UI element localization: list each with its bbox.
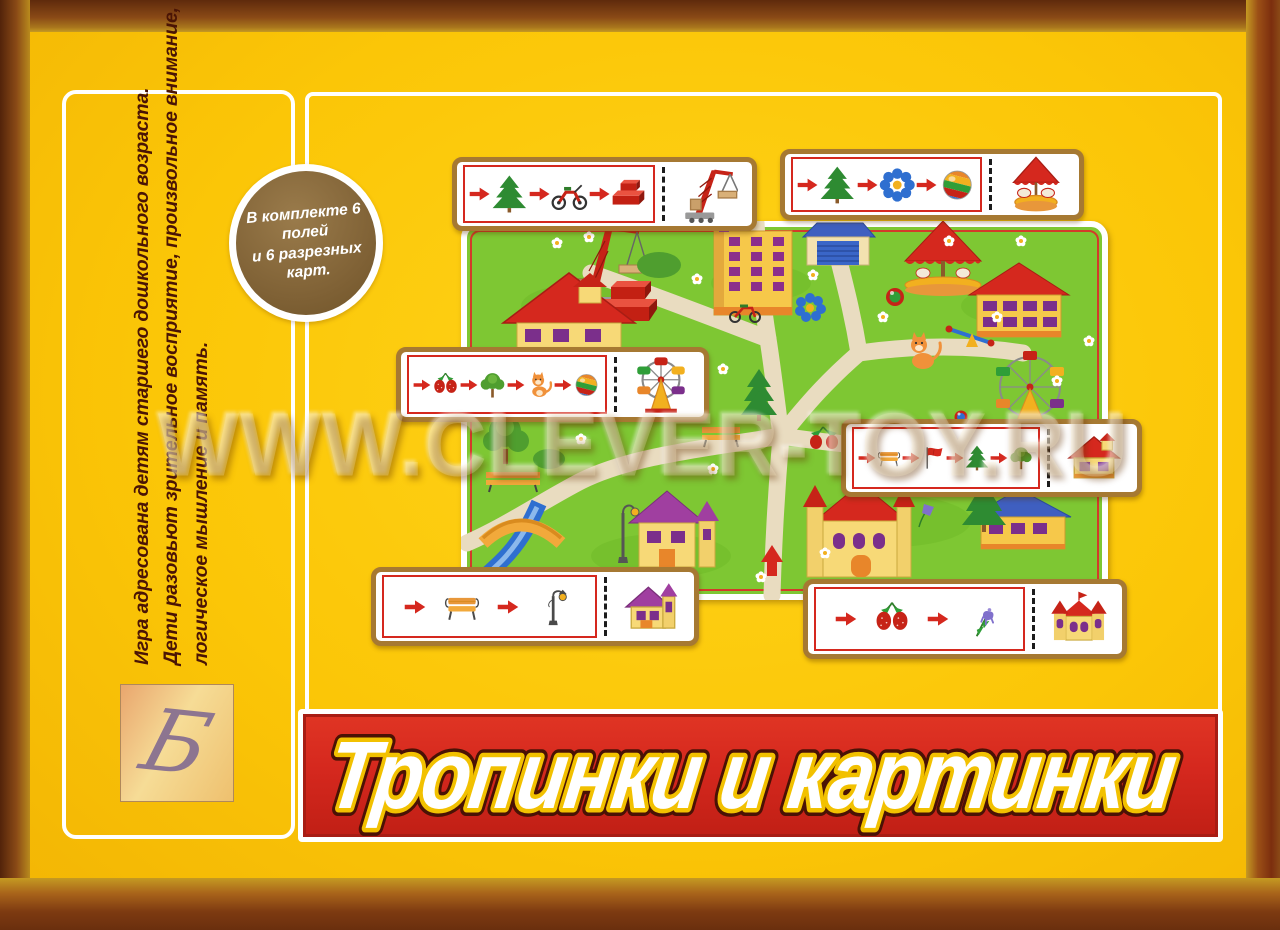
- arrow-icon: [916, 176, 937, 194]
- card-sequence: [791, 157, 982, 212]
- frame-left-edge: [0, 0, 30, 930]
- striped-ball-icon: [572, 364, 601, 406]
- sequence-card: [452, 157, 757, 231]
- sequence-card: [803, 579, 1127, 659]
- castle-house-icon: [1050, 590, 1108, 648]
- card-divider: [604, 577, 607, 636]
- game-box-cover: Игра адресована детям старшего дошкольно…: [0, 0, 1280, 930]
- arrow-icon: [497, 598, 519, 616]
- arrow-icon: [469, 185, 490, 203]
- audience-description: Игра адресована детям старшего дошкольно…: [128, 140, 233, 665]
- bench-icon: [876, 437, 902, 479]
- arrow-icon: [413, 376, 431, 394]
- fir-tree-icon: [490, 173, 529, 215]
- card-sequence: [407, 355, 607, 414]
- publisher-logo-glyph: Б: [134, 698, 221, 789]
- frame-right-edge: [1246, 0, 1280, 930]
- card-divider: [1032, 589, 1035, 649]
- crane-icon: [680, 165, 738, 223]
- card-divider: [1047, 429, 1050, 487]
- fir-tree-icon: [818, 164, 857, 206]
- carousel-icon: [1007, 156, 1065, 214]
- green-tree-icon: [478, 364, 507, 406]
- arrow-icon: [460, 376, 478, 394]
- arrow-icon: [858, 449, 876, 467]
- arrow-icon: [589, 185, 610, 203]
- badge-line-2: и 6 разрезных карт.: [251, 239, 362, 282]
- red-roof-house-icon: [1065, 429, 1123, 487]
- street-lamp-icon: [535, 586, 575, 628]
- card-target: [614, 578, 688, 636]
- card-target: [1042, 590, 1116, 648]
- arrow-icon: [946, 449, 964, 467]
- title-banner: Тропинки и картинки Тропинки и картинки …: [298, 709, 1223, 842]
- bush: [533, 449, 565, 469]
- arrow-icon: [835, 610, 857, 628]
- card-divider: [614, 357, 617, 412]
- red-flag-icon: [920, 437, 946, 479]
- kitten-icon: [525, 364, 554, 406]
- card-target: [624, 356, 698, 414]
- contents-badge-text: В комплекте 6 полей и 6 разрезных карт.: [233, 198, 379, 287]
- contents-badge: В комплекте 6 полей и 6 разрезных карт.: [229, 164, 383, 322]
- badge-line-1: В комплекте 6 полей: [246, 200, 362, 243]
- page-title: Тропинки и картинки: [321, 722, 1182, 828]
- striped-ball-icon: [938, 164, 977, 206]
- bush: [637, 252, 681, 278]
- green-tree-icon: [1008, 437, 1034, 479]
- ferris-wheel-icon: [632, 356, 690, 414]
- arrow-icon: [857, 176, 878, 194]
- sequence-card: [396, 347, 709, 422]
- sequence-card: [780, 149, 1084, 220]
- blue-flower-icon: [878, 164, 917, 206]
- card-divider: [989, 159, 992, 210]
- card-sequence: [852, 427, 1040, 489]
- garage: [803, 223, 875, 265]
- arrow-icon: [902, 449, 920, 467]
- card-target: [1057, 429, 1131, 487]
- card-target: [672, 165, 746, 223]
- audience-line: логическое мышление и память.: [187, 140, 216, 665]
- strawberry-icon: [872, 598, 912, 640]
- card-sequence: [463, 165, 655, 223]
- arrow-icon: [990, 449, 1008, 467]
- arrow-icon: [507, 376, 525, 394]
- audience-line: Игра адресована детям старшего дошкольно…: [128, 140, 157, 665]
- sequence-card: [841, 419, 1142, 497]
- card-divider: [662, 167, 665, 221]
- motorcycle-icon: [550, 173, 589, 215]
- arrow-icon: [927, 610, 949, 628]
- arrow-icon: [797, 176, 818, 194]
- frame-top-bar: [0, 0, 1280, 32]
- bench-icon: [442, 586, 482, 628]
- striped-ball: [886, 288, 904, 306]
- apartment-building: [714, 223, 792, 315]
- red-blocks-icon: [610, 173, 649, 215]
- frame-bottom-bar: [0, 878, 1280, 930]
- arrow-icon: [404, 598, 426, 616]
- arrow-icon: [554, 376, 572, 394]
- audience-line: Дети разовьют зрительное восприятие, про…: [157, 140, 186, 665]
- card-sequence: [382, 575, 597, 638]
- card-target: [999, 156, 1073, 214]
- bluebell-icon: [964, 598, 1004, 640]
- publisher-logo: Б: [120, 684, 234, 802]
- card-sequence: [814, 587, 1025, 651]
- strawberry-icon: [431, 364, 460, 406]
- arrow-icon: [529, 185, 550, 203]
- sequence-card: [371, 567, 699, 646]
- fir-tree-icon: [964, 437, 990, 479]
- purple-roof-house-icon: [622, 578, 680, 636]
